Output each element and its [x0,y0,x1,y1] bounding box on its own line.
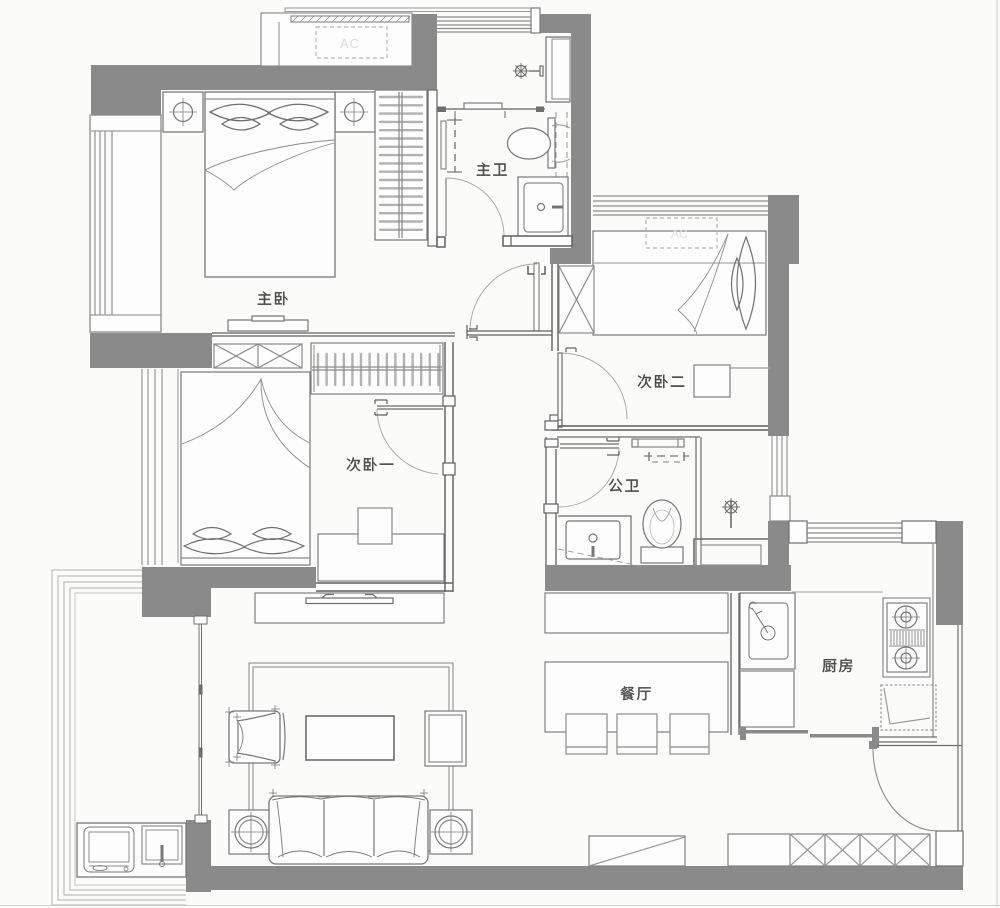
svg-text:AC: AC [671,227,688,241]
svg-text:AC: AC [340,36,360,51]
